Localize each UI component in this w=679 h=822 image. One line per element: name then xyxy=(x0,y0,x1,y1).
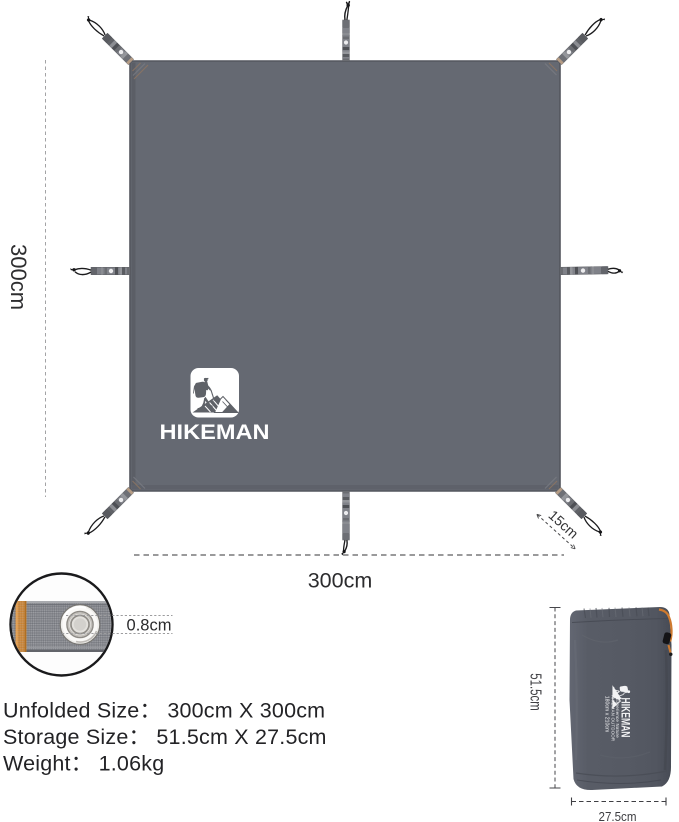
svg-text:27.5cm: 27.5cm xyxy=(599,809,637,822)
svg-text:Storage Size： 51.5cm X 27.5cm: Storage Size： 51.5cm X 27.5cm xyxy=(3,725,327,749)
svg-text:HIKEMAN: HIKEMAN xyxy=(160,421,270,444)
svg-text:Weight： 1.06kg: Weight： 1.06kg xyxy=(3,752,164,776)
svg-text:300cm: 300cm xyxy=(6,244,31,310)
svg-text:51.5cm: 51.5cm xyxy=(527,673,544,711)
svg-text:Unfolded Size： 300cm X 300cm: Unfolded Size： 300cm X 300cm xyxy=(3,699,325,723)
svg-text:HIKEMAN OUTDOOR: HIKEMAN OUTDOOR xyxy=(611,695,616,741)
svg-text:0.8cm: 0.8cm xyxy=(127,617,172,635)
svg-text:180cm x 210cm: 180cm x 210cm xyxy=(604,696,610,733)
svg-text:300cm: 300cm xyxy=(308,569,373,593)
